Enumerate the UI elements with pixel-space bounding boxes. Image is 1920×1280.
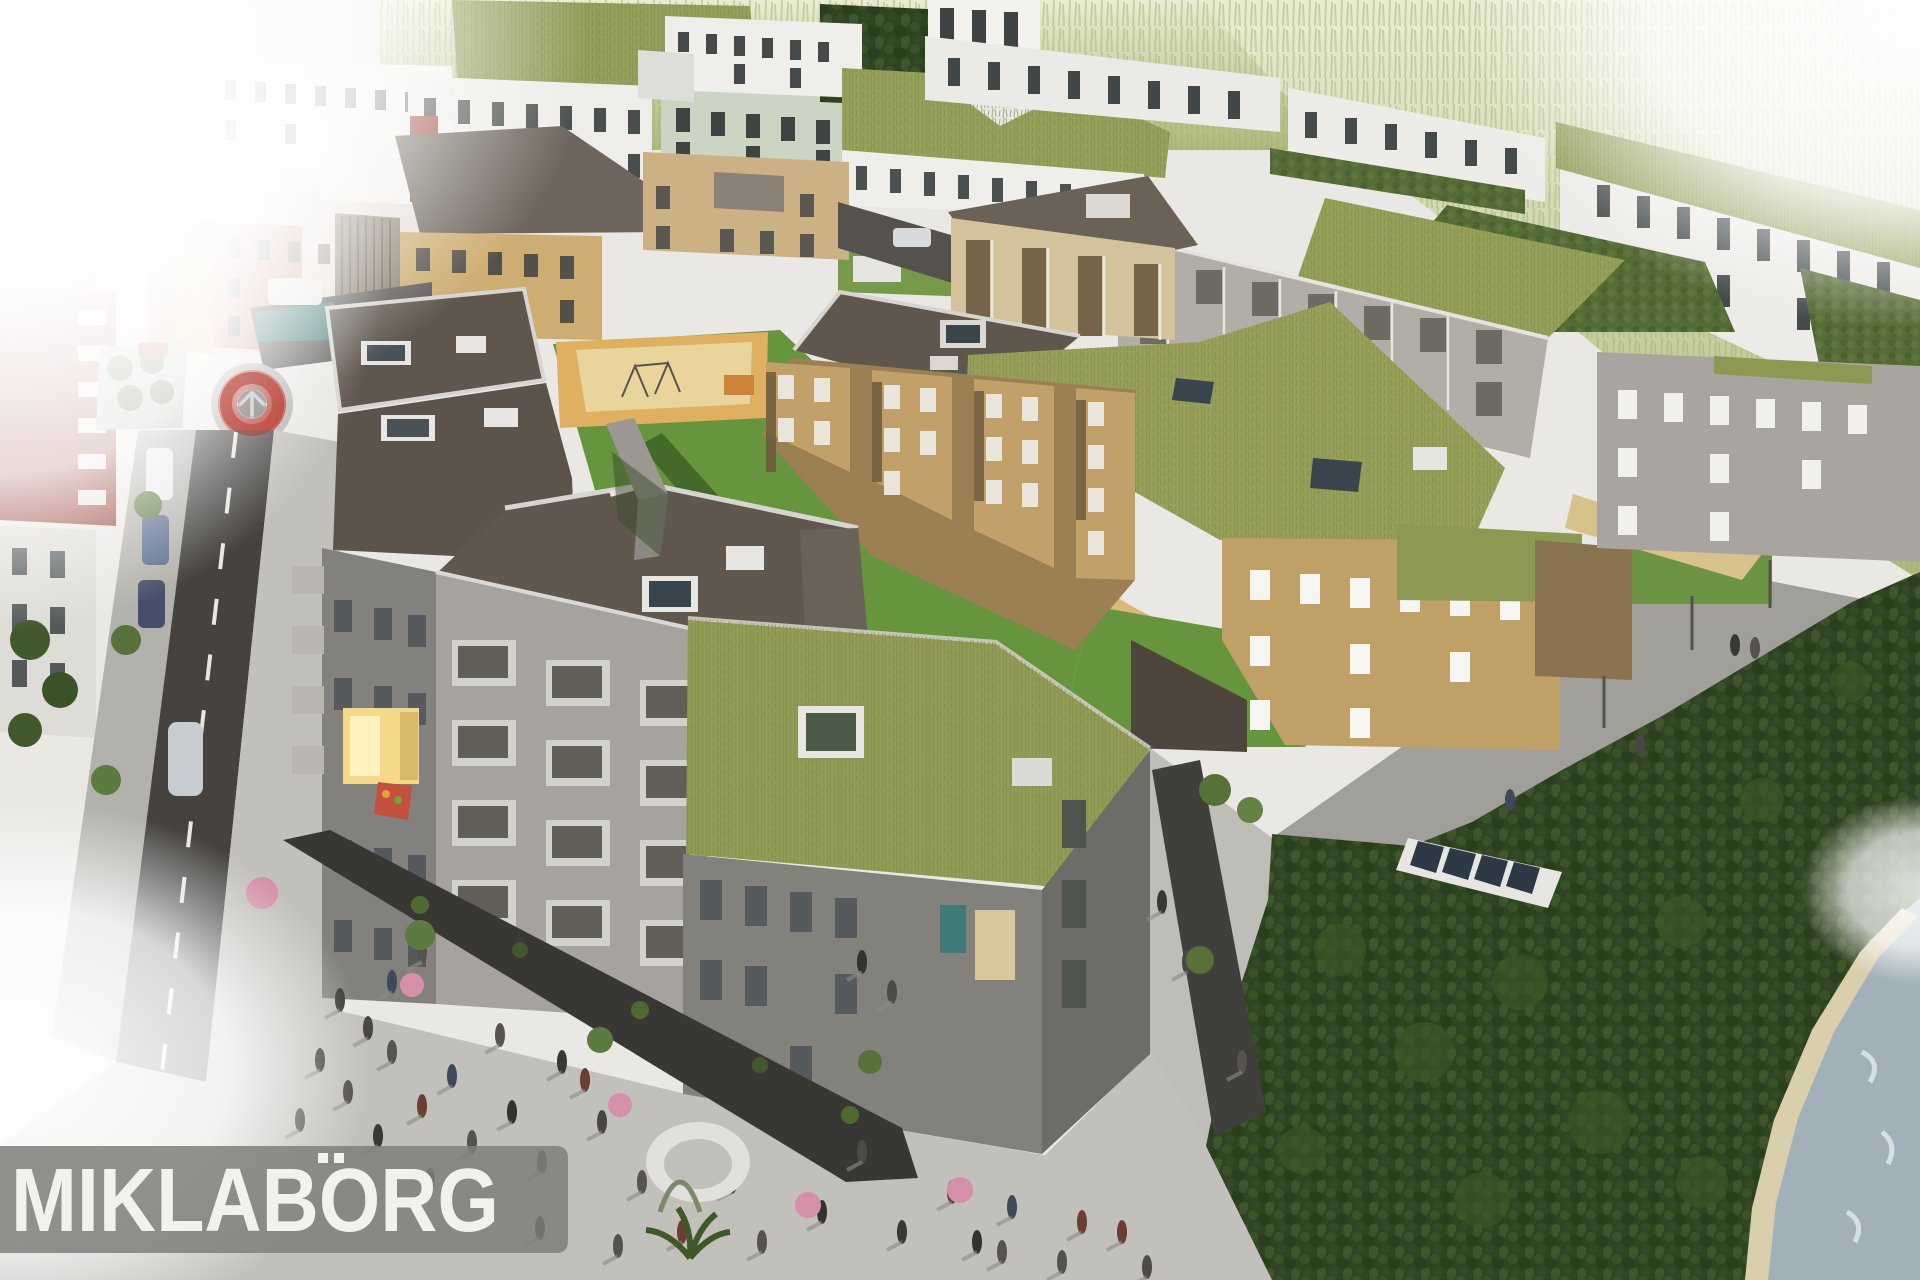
svg-text:MIKLABORG: MIKLABORG xyxy=(11,1151,499,1251)
